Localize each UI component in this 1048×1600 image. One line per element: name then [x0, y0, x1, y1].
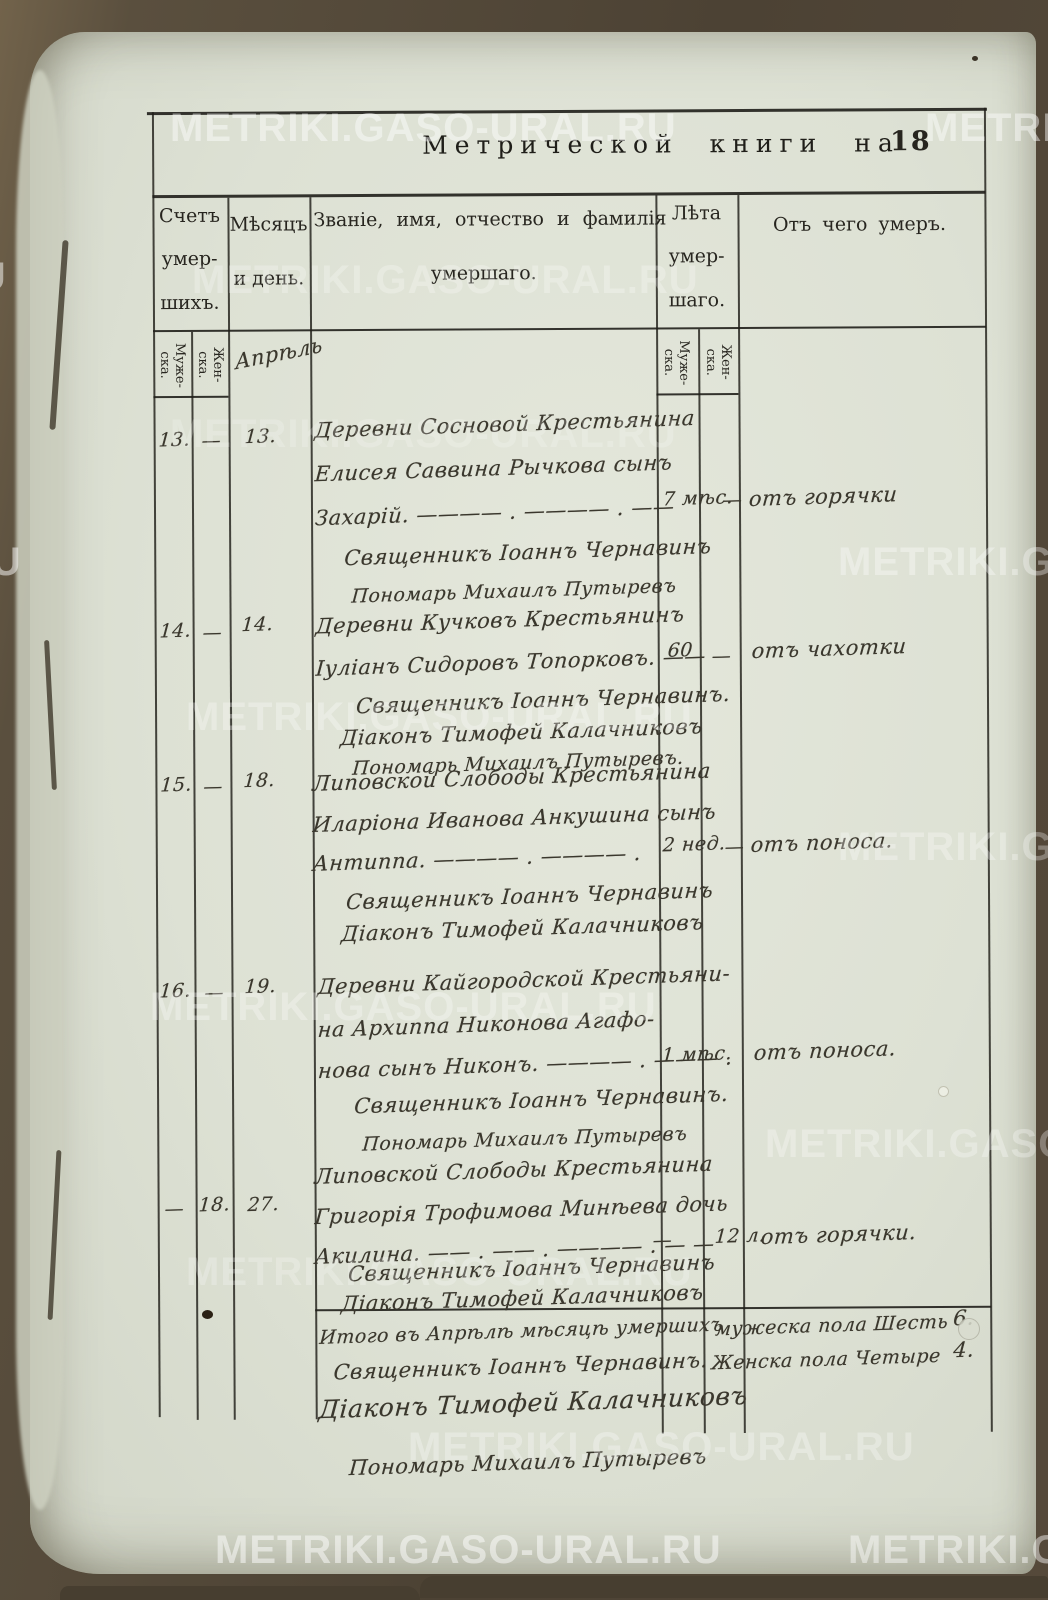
row1-age-female: — — [711, 645, 732, 668]
row0-cause: отъ горячки — [748, 482, 898, 511]
row1-signature1: Діаконъ Тимофей Калачниковъ — [339, 714, 703, 750]
header-count-line1: Счетъ — [155, 205, 223, 227]
row3-cause: отъ поноса. — [753, 1036, 897, 1065]
row1-signature0: Священникъ Іоаннъ Чернавинъ. — [355, 682, 731, 718]
summary-line: Итого въ Апрѣлѣ мѣсяцѣ умершихъ — [319, 1313, 725, 1348]
col-line-age-cause — [737, 195, 745, 1433]
row1-entry-line0: Деревни Кучковъ Крестьянинъ — [315, 602, 686, 638]
row0-entry-line0: Деревни Сосновой Крестьянина — [314, 406, 696, 443]
subheader-male-left: Муже- ска. — [157, 343, 187, 387]
row3-entry-line1: на Архиппа Никонова Агафо- — [317, 1007, 656, 1042]
subheader-male-right: Муже- ска. — [661, 340, 691, 384]
row3-signature0: Священникъ Іоаннъ Чернавинъ. — [353, 1082, 729, 1118]
row4-cause: отъ горячки. — [760, 1220, 917, 1249]
row4-signature1: Діаконъ Тимофей Калачниковъ — [340, 1280, 704, 1316]
subheader-female-right: Жен- ска. — [703, 340, 733, 384]
row1-count-male: 14. — [159, 619, 192, 642]
summary-female-value: 4. — [953, 1338, 976, 1363]
header-month-line2: и день. — [230, 267, 308, 289]
row1-entry-line1: Іуліанъ Сидоровъ Топорковъ. —— — [315, 644, 707, 681]
header-age-line1: Лѣта — [657, 202, 735, 224]
row3-age-male: 1 мѣс. — [661, 1042, 733, 1066]
col-line-count-divider — [191, 332, 198, 1420]
row0-signature1: Пономарь Михаилъ Путыревъ — [351, 575, 677, 608]
row1-age-male: 60 — [667, 639, 694, 662]
row2-count-male: 15. — [160, 773, 193, 796]
summary-female-label: Женска пола Четыре — [711, 1345, 942, 1375]
row3-entry-line0: Деревни Кайгородской Крестьяни- — [317, 961, 731, 999]
row2-entry-line2: Антиппа. ———— . ———— . — [312, 841, 642, 876]
header-cause: Отъ чего умеръ. — [735, 213, 983, 236]
row4-count-female: 18. — [198, 1193, 231, 1216]
col-line-count-month — [227, 198, 235, 1420]
row0-entry-line1: Елисея Саввина Рычкова сынъ — [314, 450, 673, 486]
subheader-female-left: Жен- ска. — [195, 343, 225, 387]
row3-signature1: Пономарь Михаилъ Путыревъ — [362, 1123, 688, 1156]
row4-entry-line0: Липовской Слободы Крестьянина — [314, 1152, 714, 1189]
row3-count-male: 16. — [159, 979, 192, 1002]
header-month-line1: Мѣсяцъ — [229, 213, 307, 235]
summary-male-label: мужеска пола Шесть — [715, 1311, 950, 1341]
row0-count-male: 13. — [158, 428, 191, 451]
page-title: Метрической книги на — [422, 128, 900, 160]
header-count-line3: шихъ. — [156, 292, 224, 314]
row0-count-female: — — [201, 429, 222, 452]
summary-signature0: Священникъ Іоаннъ Чернавинъ. — [333, 1348, 709, 1384]
row0-day: 13. — [244, 425, 277, 448]
row2-age-male: 2 нед. — [662, 832, 727, 856]
ink-blot — [202, 1310, 213, 1319]
header-top-line — [152, 191, 985, 198]
row2-count-female: — — [203, 775, 224, 798]
row1-count-female: — — [202, 621, 223, 644]
scanned-book-page: Метрической книги на 18 Счетъ умер- шихъ… — [0, 0, 1048, 1600]
header-name-line1: Званіе, имя, отчество и фамилія — [313, 208, 653, 232]
row1-day: 14. — [241, 613, 274, 636]
paper-smudge — [958, 1318, 980, 1340]
table-top-border — [147, 108, 987, 115]
row4-entry-line1: Григорія Трофимова Минѣева дочь — [314, 1191, 729, 1229]
row4-age-male: — — [652, 1229, 673, 1252]
row4-count-male: — — [164, 1198, 185, 1221]
header-age-line3: шаго. — [658, 289, 736, 311]
row1-cause: отъ чахотки — [751, 634, 907, 663]
summary-signature1: Діаконъ Тимофей Калачниковъ — [318, 1381, 749, 1424]
row2-signature1: Діаконъ Тимофей Калачниковъ — [340, 910, 704, 946]
row0-age-female: — — [722, 489, 743, 512]
row0-entry-line2: Захарій. ———— . ———— . —— — [314, 494, 675, 530]
row2-entry-line1: Иларіона Иванова Анкушина сынъ — [312, 800, 717, 837]
row3-day: 19. — [244, 975, 277, 998]
row3-count-female: — — [204, 981, 225, 1004]
page-title-year: 18 — [890, 126, 932, 157]
header-count-line2: умер- — [156, 248, 224, 270]
ink-speck — [972, 56, 978, 61]
paper-hole — [938, 1086, 949, 1097]
metrical-table: Метрической книги на 18 Счетъ умер- шихъ… — [0, 0, 1048, 1600]
bottom-signature: Пономарь Михаилъ Путыревъ — [348, 1444, 708, 1480]
row4-day: 27. — [247, 1193, 280, 1216]
row2-day: 18. — [243, 769, 276, 792]
table-right-border — [984, 108, 993, 1432]
header-bottom-line — [153, 326, 986, 332]
row2-cause: отъ поноса. — [750, 828, 894, 857]
header-age-line2: умер- — [658, 245, 736, 267]
row4-age-female: 12 л. — [714, 1224, 766, 1248]
subheader-bottom-line-right — [656, 393, 738, 395]
header-name-line2: умершаго. — [314, 262, 654, 286]
row2-age-female: — — [724, 836, 745, 859]
col-line-month-name — [309, 197, 317, 1419]
